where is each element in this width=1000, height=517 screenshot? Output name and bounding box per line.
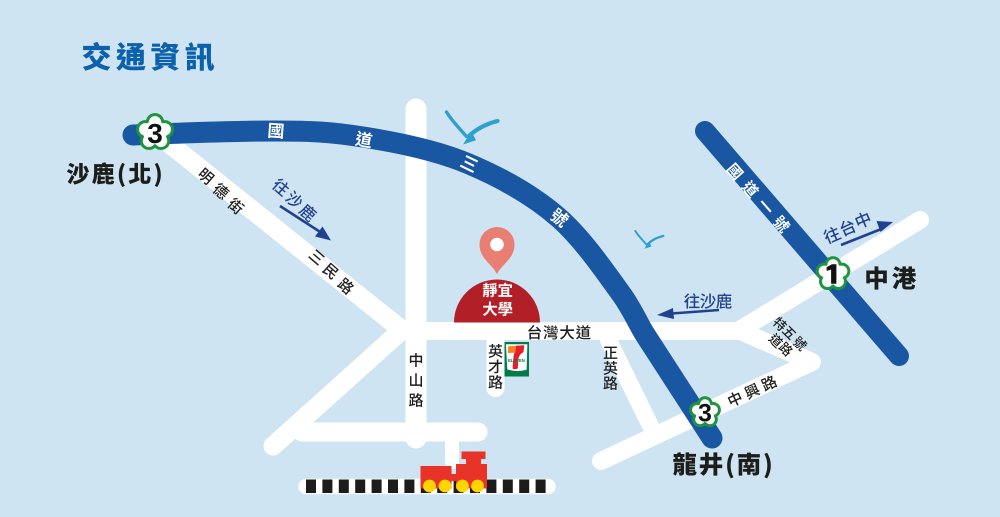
svg-text:3: 3 (147, 118, 163, 149)
svg-text:3: 3 (698, 400, 712, 428)
svg-text:ELEVEN: ELEVEN (508, 358, 525, 363)
